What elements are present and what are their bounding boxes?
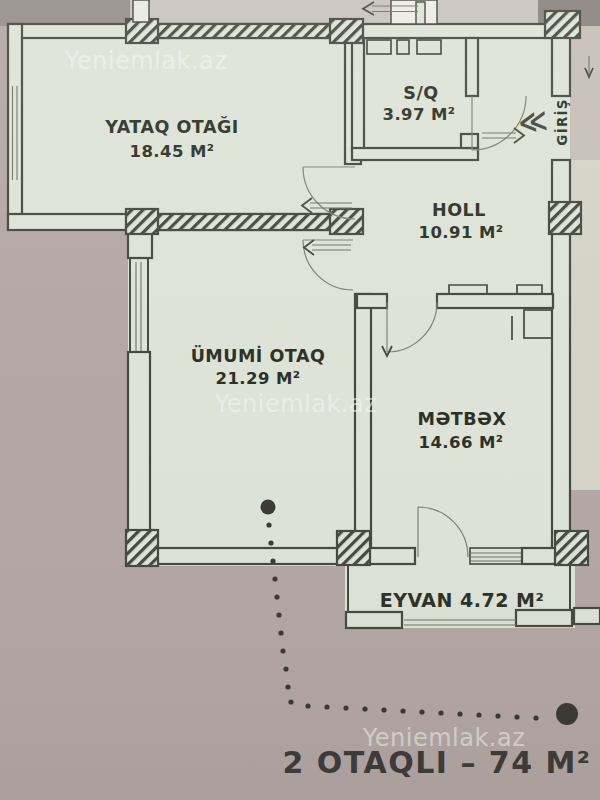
room-label-living: ÜMUMİ OTAQ [191, 345, 326, 366]
room-label-bathroom: S/Q [403, 83, 438, 103]
floor-plan-photo: Yeniemlak.az Yeniemlak.az Yeniemlak.az Y… [0, 0, 600, 800]
room-label-balcony: EYVAN 4.72 M² [380, 589, 545, 611]
room-label-kitchen: MƏTBƏX [418, 409, 507, 429]
watermark-middle: Yeniemlak.az [214, 390, 377, 418]
room-area-living: 21.29 M² [216, 369, 301, 388]
plan-caption: 2 OTAQLI – 74 M² [282, 745, 591, 780]
room-area-hall: 10.91 M² [419, 223, 504, 242]
room-area-bedroom: 18.45 M² [130, 142, 215, 161]
entrance-label: GİRİŞ [554, 98, 570, 145]
room-label-hall: HOLL [432, 200, 486, 220]
room-area-bathroom: 3.97 M² [383, 105, 456, 124]
room-label-bedroom: YATAQ OTAĞI [104, 116, 239, 137]
room-area-kitchen: 14.66 M² [419, 433, 504, 452]
floor-plan-image: Yeniemlak.az Yeniemlak.az Yeniemlak.az Y… [0, 0, 600, 800]
leader-start-dot [261, 500, 276, 515]
watermark-top: Yeniemlak.az [64, 47, 227, 75]
leader-end-dot [556, 703, 578, 725]
entrance-chevrons-icon: ≪ [516, 103, 549, 139]
